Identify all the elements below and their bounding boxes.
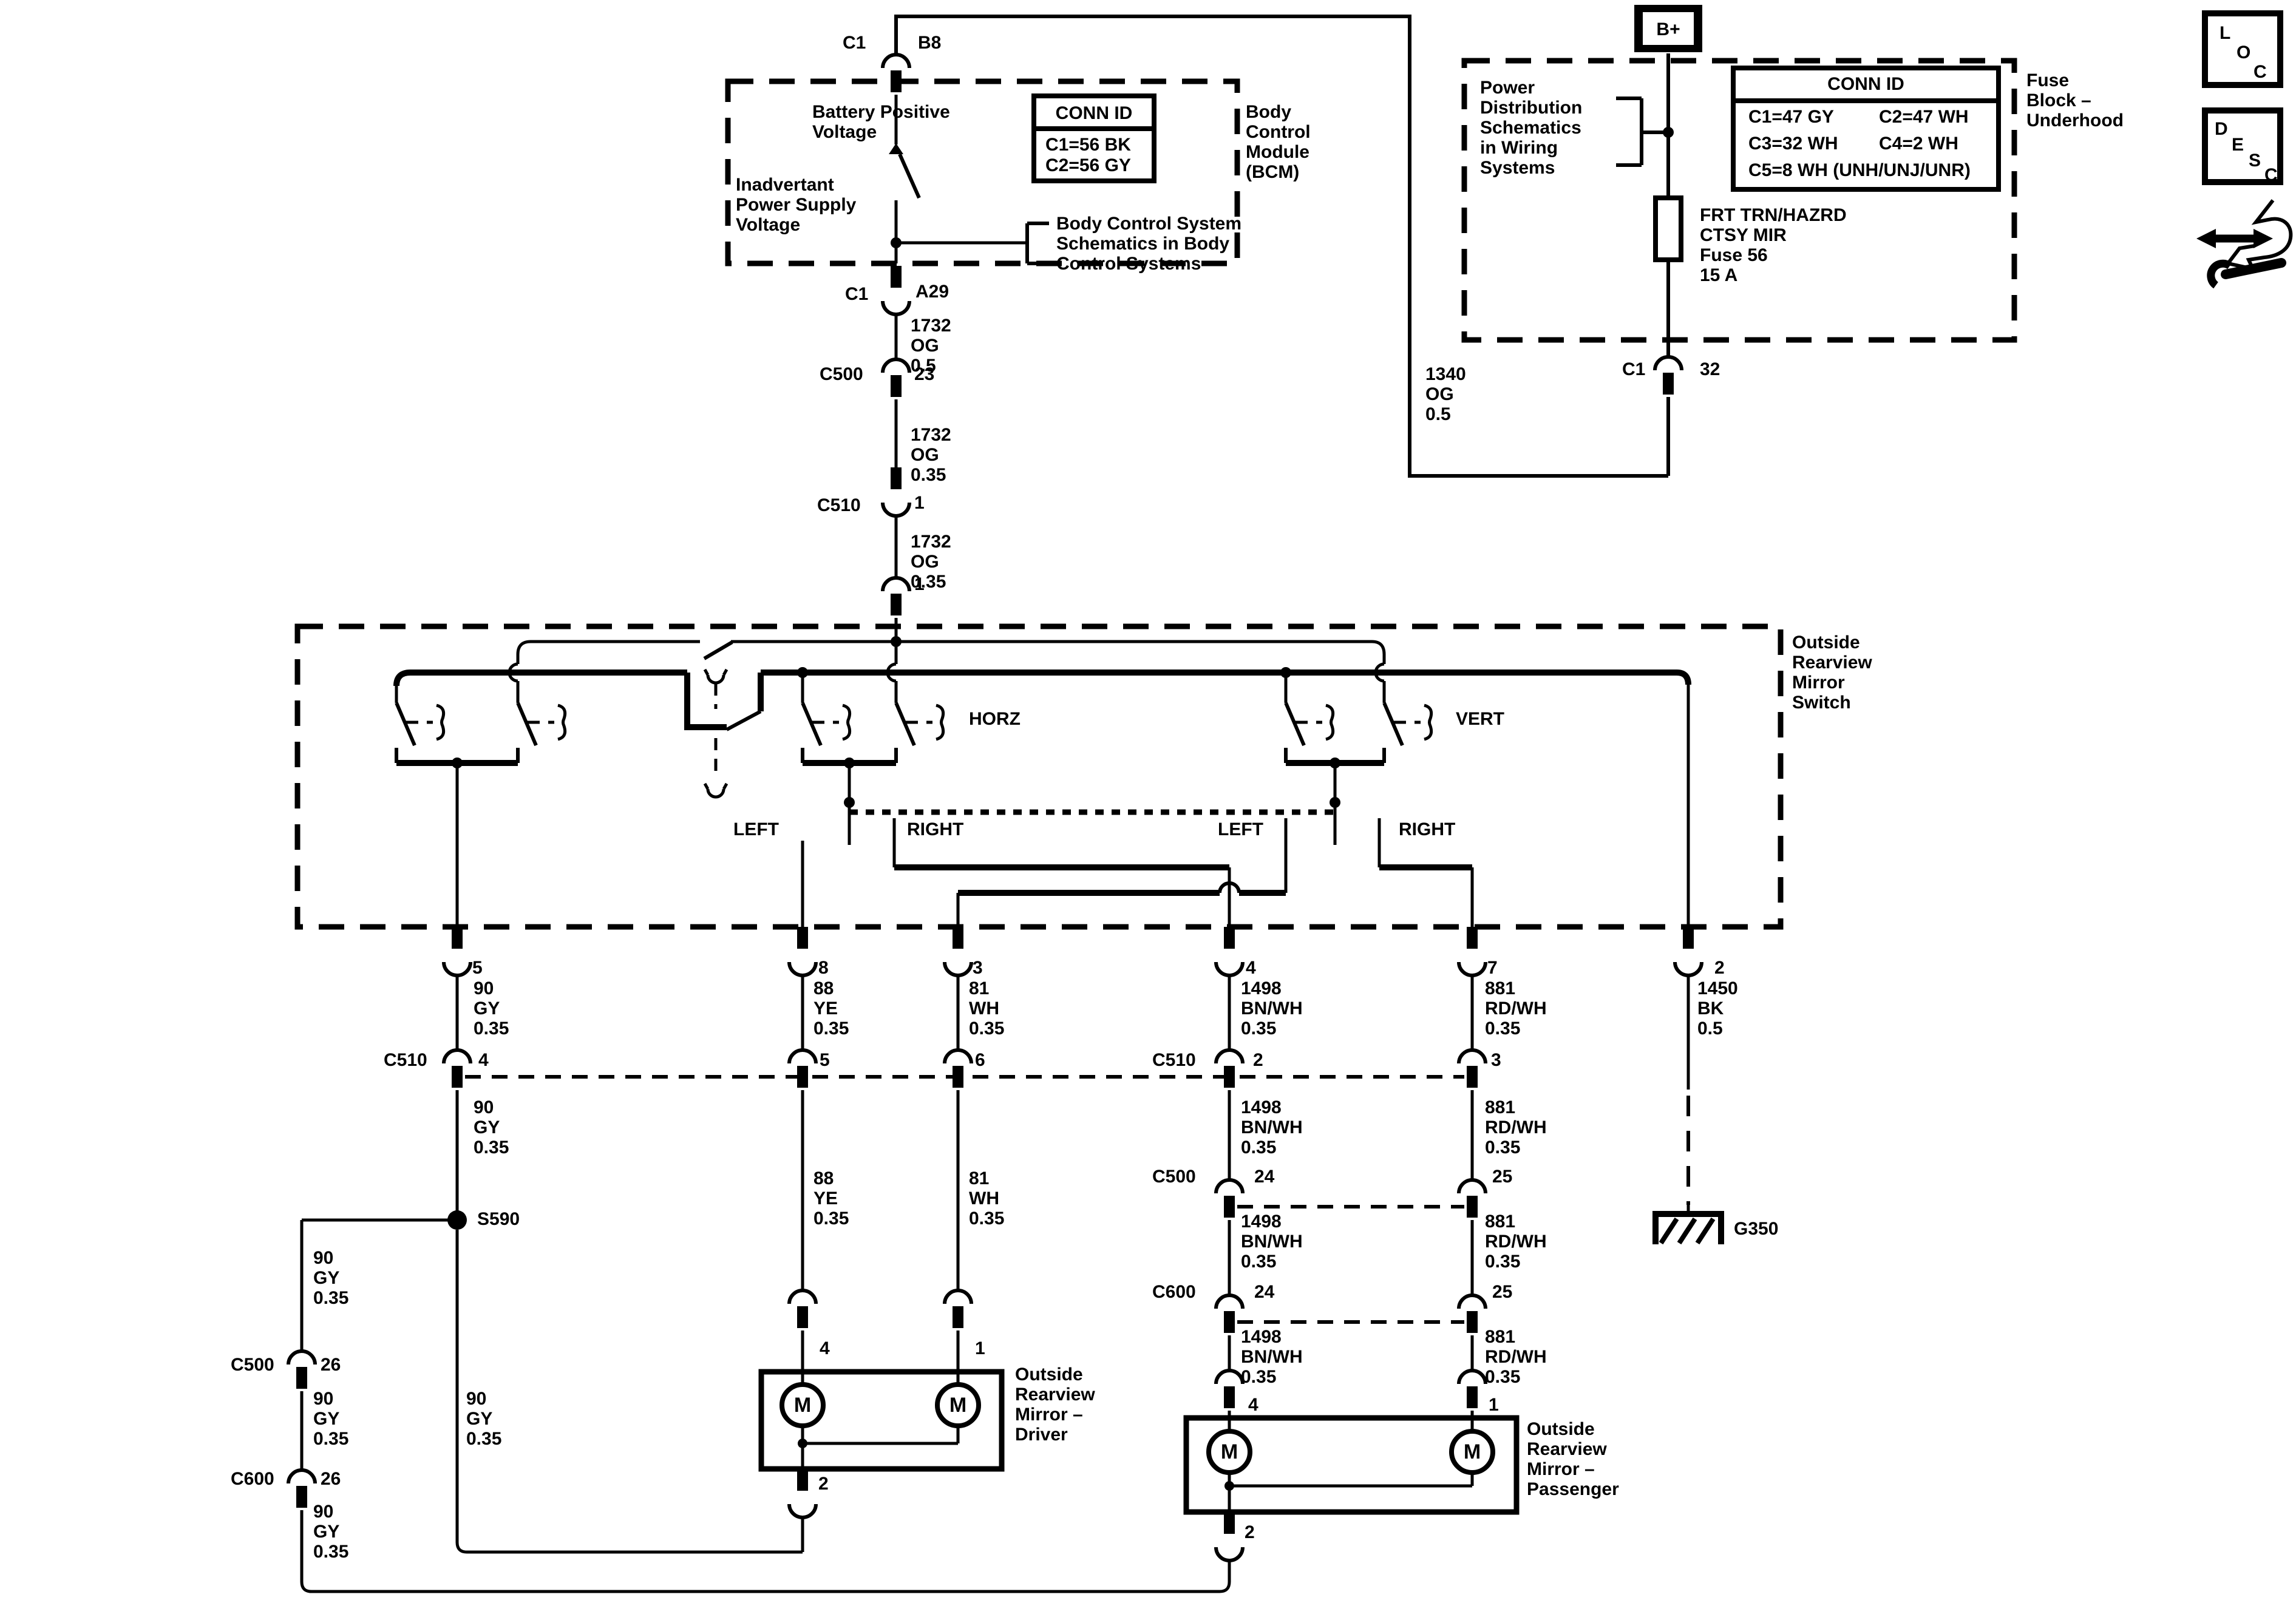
c600-pin-25: 25: [1492, 1282, 1512, 1302]
c600-pass-label: C600: [1152, 1282, 1196, 1302]
desc-letter-e: E: [2232, 136, 2244, 154]
desc-letter-s: S: [2249, 152, 2261, 170]
c510-inline-label: C510: [817, 495, 861, 515]
switch-pin-1-label: 1: [914, 574, 925, 594]
wire-881-rdwh-3: 881 RD/WH 0.35: [1485, 1212, 1547, 1272]
horz-right-label: RIGHT: [907, 819, 963, 839]
vert-label: VERT: [1456, 709, 1504, 729]
common-switch-pair: [396, 681, 565, 927]
c500-pin-24: 24: [1254, 1167, 1274, 1187]
c1-a29-right: A29: [915, 282, 949, 302]
power-distribution-bracket: [1616, 98, 1668, 165]
passenger-pin-2: 2: [1245, 1522, 1255, 1542]
wire-1450-bk: 1450 BK 0.5: [1697, 978, 1738, 1039]
fuse-block-title: Fuse Block – Underhood: [2026, 70, 2124, 131]
wire-90-gy-4: 90 GY 0.35: [313, 1389, 348, 1449]
wire-1498-bnwh-1: 1498 BN/WH 0.35: [1241, 978, 1303, 1039]
harness-connector-rows: [465, 1077, 1464, 1322]
wire-88-ye-1: 88 YE 0.35: [813, 978, 849, 1039]
fuse-out-c1-label: C1: [1622, 359, 1645, 379]
switch-pin-7: 7: [1487, 958, 1498, 978]
circuit-81-wh: [945, 975, 971, 1385]
wire-90-gy-6: 90 GY 0.35: [466, 1389, 501, 1449]
c510-left-label: C510: [384, 1050, 427, 1070]
body-control-schematics-label: Body Control System Schematics in Body C…: [1056, 214, 1241, 274]
circuit-88-ye: [789, 975, 816, 1385]
circuit-881-rdwh: [1459, 975, 1486, 1431]
mirror-select-switch: [704, 642, 761, 797]
passenger-pin-4: 4: [1248, 1395, 1258, 1415]
c510-pass-label: C510: [1152, 1050, 1196, 1070]
c510-pin-2: 2: [1253, 1050, 1263, 1070]
mirror-switch-box: [297, 626, 1781, 927]
ground-symbol-g350: [1652, 1214, 1724, 1244]
c500-left-label: C500: [231, 1355, 274, 1375]
wire-881-rdwh-1: 881 RD/WH 0.35: [1485, 978, 1547, 1039]
wire-1498-bnwh-4: 1498 BN/WH 0.35: [1241, 1327, 1303, 1387]
loc-letter-o: O: [2237, 44, 2250, 62]
driver-pin-1: 1: [975, 1338, 985, 1358]
desc-letter-c: C: [2264, 166, 2278, 185]
driver-pin-2: 2: [818, 1474, 829, 1494]
c510-pin-1: 1: [914, 493, 925, 513]
circuit-1732-wire: [883, 266, 909, 642]
circuit-90-gy: [288, 975, 1229, 1592]
inadvertant-power-label: Inadvertant Power Supply Voltage: [736, 175, 856, 235]
c600-left-label: C600: [231, 1469, 274, 1489]
wire-88-ye-2: 88 YE 0.35: [813, 1168, 849, 1229]
wire-90-gy-1: 90 GY 0.35: [474, 978, 509, 1039]
passenger-mirror-title: Outside Rearview Mirror – Passenger: [1527, 1419, 1619, 1499]
power-distribution-label: Power Distribution Schematics in Wiring …: [1480, 78, 1582, 178]
passenger-motor-m1: M: [1221, 1442, 1238, 1462]
ground-g350-label: G350: [1734, 1219, 1778, 1239]
fuse-conn-c2: C2=47 WH: [1879, 107, 1969, 127]
horz-label: HORZ: [969, 709, 1021, 729]
bcm-conn-id-title: CONN ID: [1034, 103, 1154, 123]
fuse-conn-c3: C3=32 WH: [1748, 134, 1838, 154]
c500-pin-26: 26: [321, 1355, 341, 1375]
vert-right-label: RIGHT: [1399, 819, 1455, 839]
c500-pin-25: 25: [1492, 1167, 1512, 1187]
switch-top-rail: [518, 636, 1384, 664]
fuse-56-symbol: [1656, 198, 1681, 260]
bcm-title: Body Control Module (BCM): [1246, 102, 1311, 182]
c510-pin-6: 6: [975, 1050, 985, 1070]
switch-output-wires: [803, 683, 1688, 927]
wire-90-gy-2: 90 GY 0.35: [474, 1097, 509, 1158]
bcm-conn-id-row1: C1=56 BK: [1045, 135, 1131, 155]
bcm-conn-c1-label: C1: [843, 33, 866, 53]
splice-s590-label: S590: [477, 1209, 520, 1229]
wire-1732-og-035-a: 1732 OG 0.35: [911, 425, 951, 485]
fuse-conn-id-title: CONN ID: [1733, 74, 1999, 94]
fuse-conn-c1: C1=47 GY: [1748, 107, 1834, 127]
wire-81-wh-2: 81 WH 0.35: [969, 1168, 1004, 1229]
c500-pin-23: 23: [914, 364, 934, 384]
wire-881-rdwh-4: 881 RD/WH 0.35: [1485, 1327, 1547, 1387]
mirror-switch-title: Outside Rearview Mirror Switch: [1792, 632, 1872, 713]
wire-1498-bnwh-3: 1498 BN/WH 0.35: [1241, 1212, 1303, 1272]
wire-81-wh-1: 81 WH 0.35: [969, 978, 1004, 1039]
circuit-1498-bnwh: [1216, 975, 1243, 1431]
fuse-conn-c4: C4=2 WH: [1879, 134, 1958, 154]
driver-motor-m2: M: [949, 1395, 966, 1415]
battery-positive-label: Battery Positive Voltage: [812, 102, 950, 142]
horz-left-label: LEFT: [733, 819, 779, 839]
switch-pin-5: 5: [472, 958, 483, 978]
vert-left-label: LEFT: [1218, 819, 1263, 839]
bcm-conn-id-row2: C2=56 GY: [1045, 155, 1131, 175]
switch-pin-4: 4: [1246, 958, 1256, 978]
c1-a29-left: C1: [845, 284, 868, 304]
driver-pin-4: 4: [820, 1338, 830, 1358]
fuse-out-pin-32: 32: [1700, 359, 1720, 379]
switch-pin-connectors: [444, 927, 1702, 975]
wire-1498-bnwh-2: 1498 BN/WH 0.35: [1241, 1097, 1303, 1158]
c510-pin-3: 3: [1491, 1050, 1501, 1070]
fuse-conn-c5: C5=8 WH (UNH/UNJ/UNR): [1748, 160, 1971, 180]
passenger-pin-1: 1: [1489, 1395, 1499, 1415]
c600-pin-26: 26: [321, 1469, 341, 1489]
wire-90-gy-3: 90 GY 0.35: [313, 1248, 348, 1308]
driver-motor-m1: M: [794, 1395, 811, 1415]
c500-inline-label: C500: [820, 364, 863, 384]
body-control-bracket: [1027, 223, 1049, 263]
loc-letter-c: C: [2254, 63, 2267, 81]
c500-pass-label: C500: [1152, 1167, 1196, 1187]
c510-pin-5: 5: [820, 1050, 830, 1070]
wiring-diagram-page: C1 B8 Battery Positive Voltage Inadverta…: [0, 0, 2296, 1617]
b-plus-label: B+: [1656, 19, 1680, 39]
driver-mirror-title: Outside Rearview Mirror – Driver: [1015, 1364, 1095, 1445]
adjust-tool-icon[interactable]: [2196, 200, 2291, 285]
switch-pin-2: 2: [1714, 958, 1725, 978]
switch-pin-3: 3: [973, 958, 983, 978]
fuse-56-label: FRT TRN/HAZRD CTSY MIR Fuse 56 15 A: [1700, 205, 1847, 285]
c600-pin-24: 24: [1254, 1282, 1274, 1302]
bcm-conn-b8-label: B8: [918, 33, 941, 53]
loc-letter-l: L: [2220, 24, 2230, 42]
wire-1340-og: 1340 OG 0.5: [1425, 364, 1466, 424]
wire-90-gy-5: 90 GY 0.35: [313, 1502, 348, 1562]
desc-letter-d: D: [2215, 120, 2228, 138]
passenger-motor-m2: M: [1464, 1442, 1481, 1462]
c510-pin-4: 4: [478, 1050, 489, 1070]
wire-881-rdwh-2: 881 RD/WH 0.35: [1485, 1097, 1547, 1158]
switch-pin-8: 8: [818, 958, 829, 978]
